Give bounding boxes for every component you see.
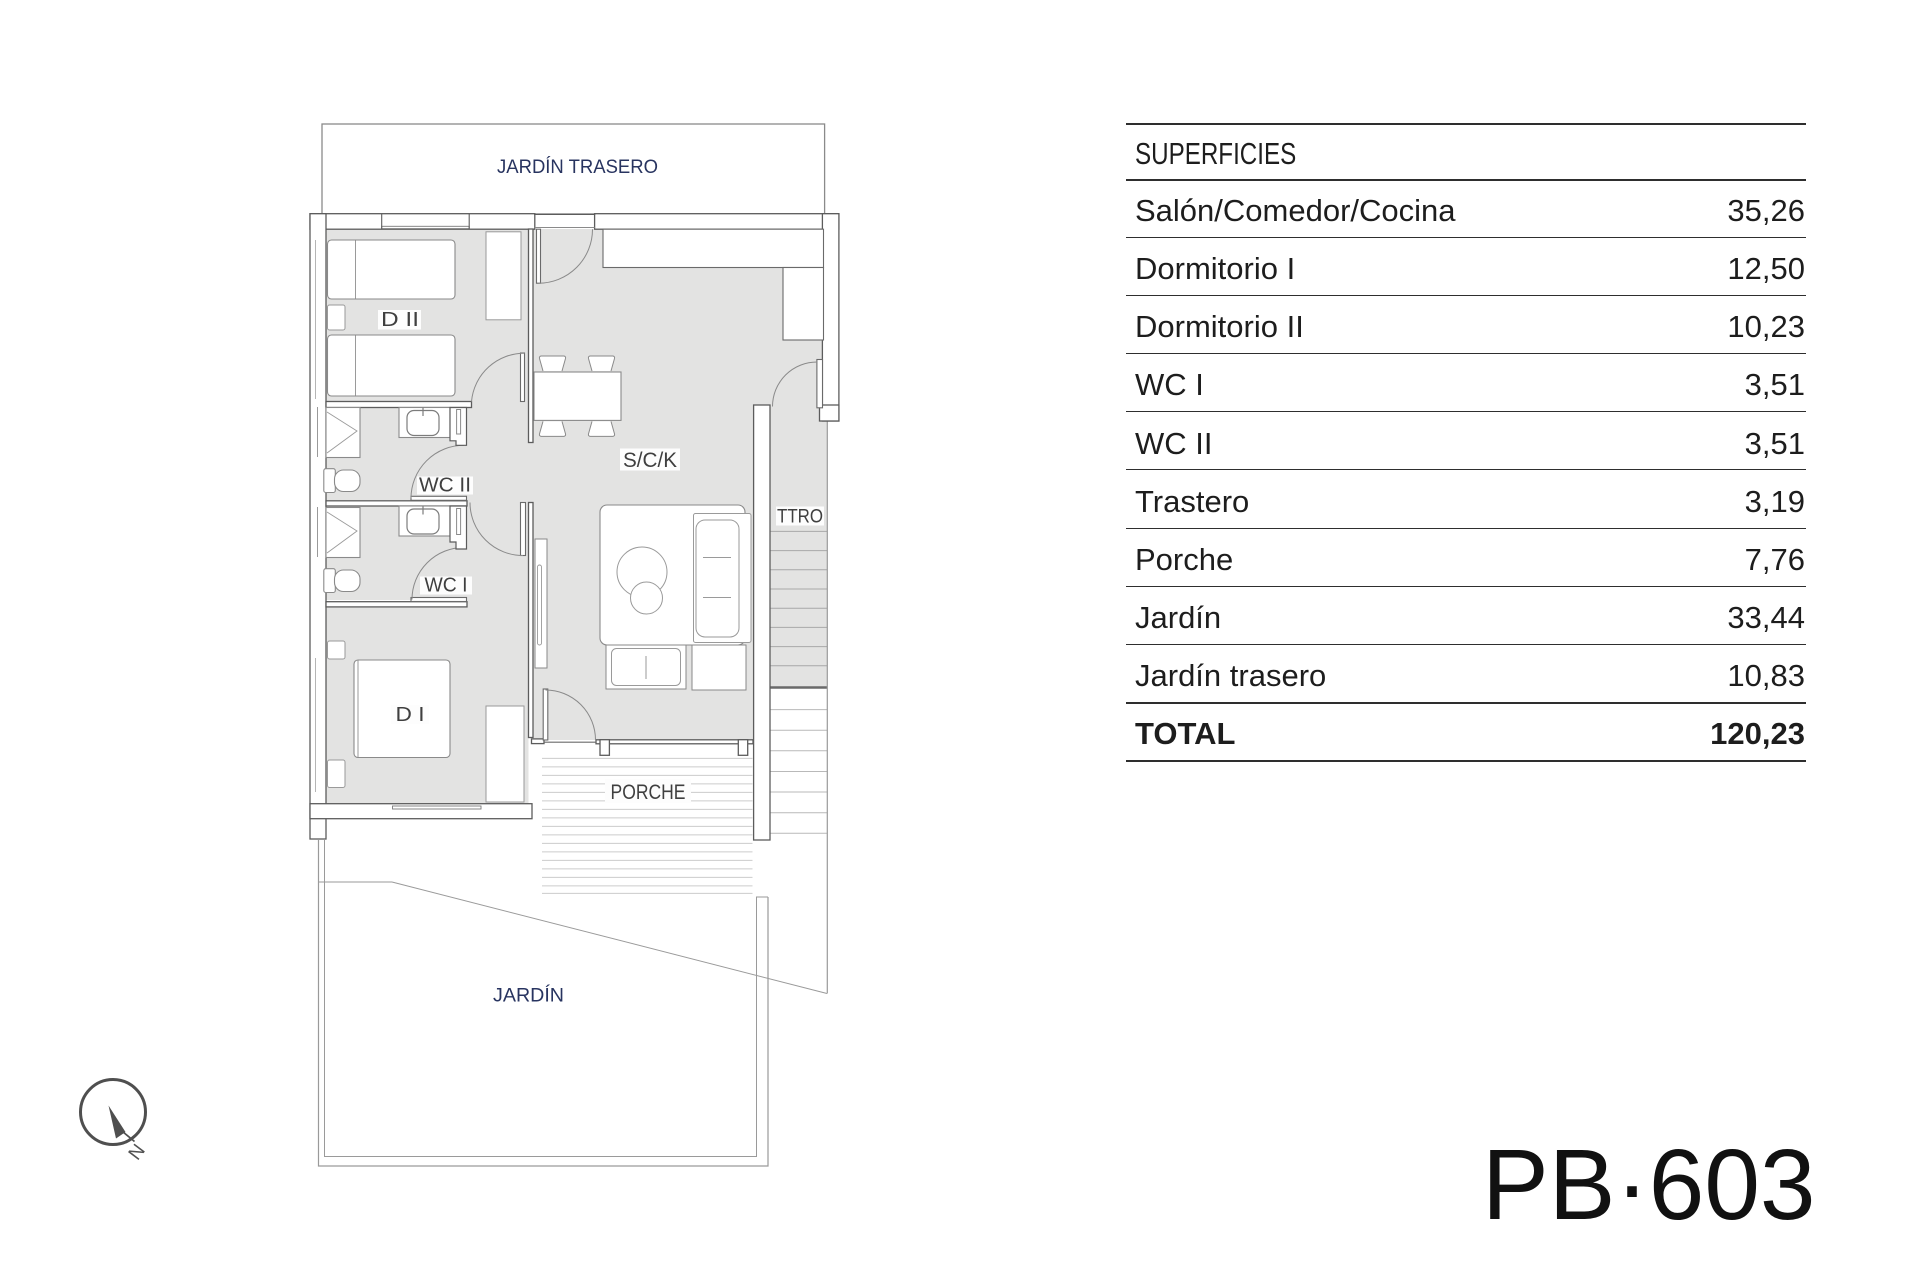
svg-text:WC I: WC I [425,575,468,597]
svg-text:TTRO: TTRO [777,507,823,528]
svg-text:D II: D II [381,309,419,331]
svg-text:JARDÍN: JARDÍN [493,984,564,1007]
svg-text:JARDÍN TRASERO: JARDÍN TRASERO [497,155,658,178]
svg-text:D I: D I [396,704,425,726]
svg-text:WC II: WC II [419,475,471,497]
svg-text:PORCHE: PORCHE [611,780,686,804]
svg-text:S/C/K: S/C/K [623,449,677,472]
